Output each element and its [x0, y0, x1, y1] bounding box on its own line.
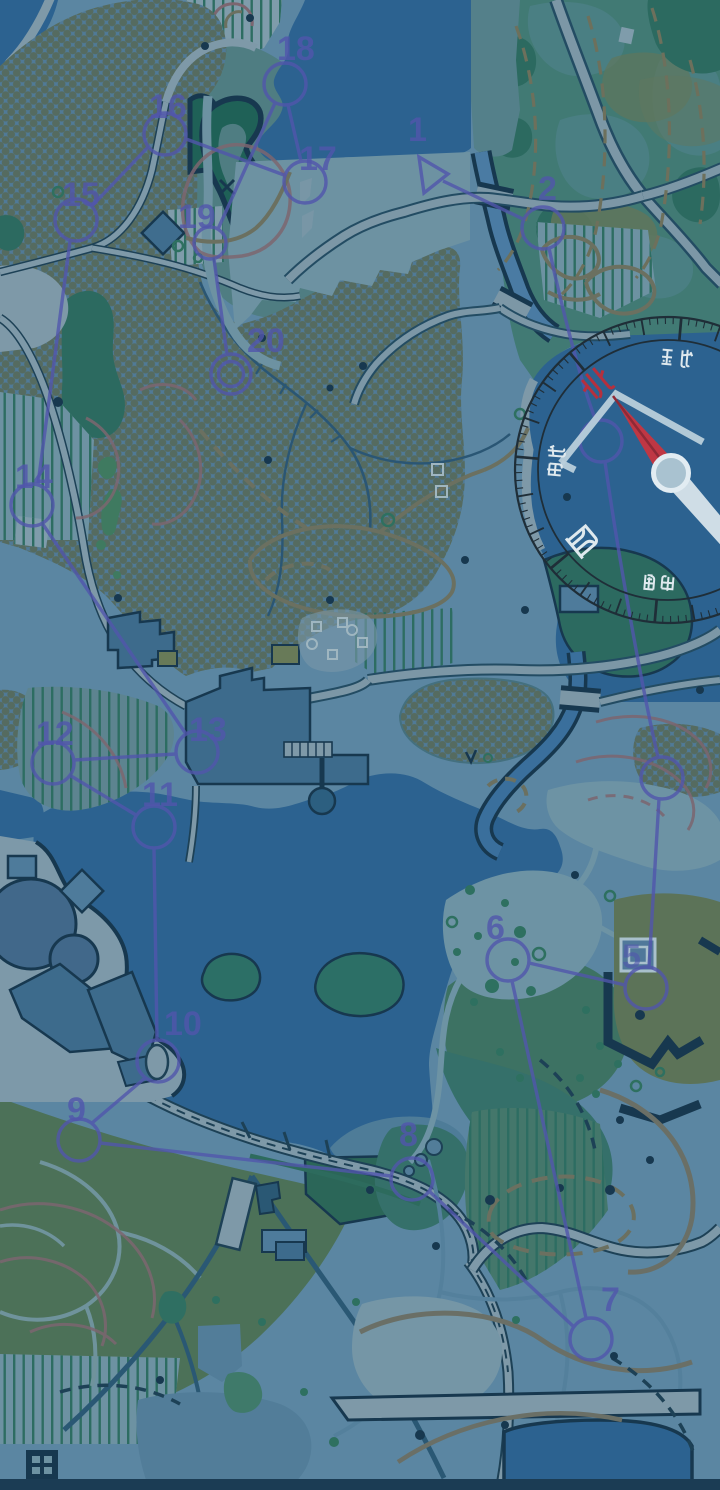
- svg-text:14: 14: [15, 458, 53, 496]
- svg-text:1: 1: [408, 111, 427, 149]
- svg-text:13: 13: [189, 711, 227, 749]
- svg-text:17: 17: [299, 140, 337, 178]
- svg-text:12: 12: [36, 715, 74, 753]
- svg-text:6: 6: [486, 909, 505, 947]
- svg-text:16: 16: [149, 88, 187, 126]
- svg-text:2: 2: [538, 170, 557, 208]
- svg-text:18: 18: [277, 30, 315, 68]
- svg-text:7: 7: [601, 1281, 620, 1319]
- svg-text:20: 20: [247, 322, 285, 360]
- svg-text:10: 10: [164, 1005, 202, 1043]
- svg-text:11: 11: [142, 776, 178, 814]
- svg-text:5: 5: [622, 938, 641, 976]
- svg-text:8: 8: [399, 1116, 418, 1154]
- svg-text:19: 19: [178, 198, 216, 236]
- svg-text:9: 9: [67, 1091, 86, 1129]
- svg-text:15: 15: [62, 176, 100, 214]
